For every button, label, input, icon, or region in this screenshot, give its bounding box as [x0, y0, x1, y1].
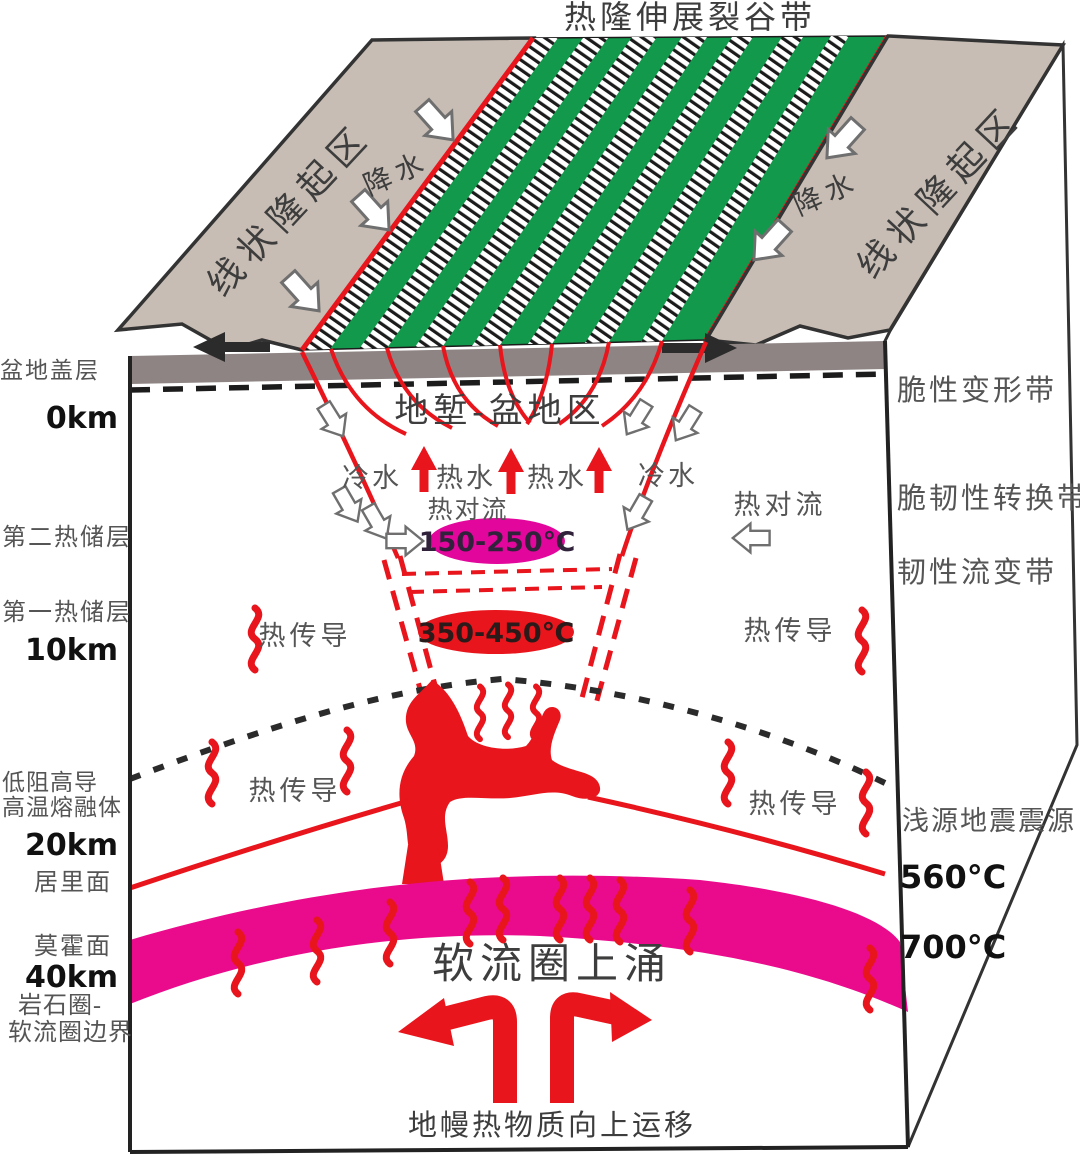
diagram-title: 热隆伸展裂谷带: [564, 0, 816, 35]
reservoir2-label: 第二热储层: [2, 524, 132, 551]
diagram-svg: 热隆伸展裂谷带 线状隆起区 线状隆起区 降水 降水 地堑-盆地区 冷水 热水 热…: [0, 0, 1080, 1157]
ellipse-temp-350-450: 350-450℃: [418, 618, 575, 649]
hot-water-label-2: 热水: [527, 463, 587, 493]
temp-560-label: 560°C: [900, 858, 1006, 896]
temp-700-label: 700°C: [900, 928, 1006, 966]
cold-water-arrow: [386, 527, 423, 556]
graben-title: 地堑-盆地区: [394, 392, 605, 430]
hot-water-arrow: [586, 447, 612, 493]
brittle-zone-label: 脆性变形带: [897, 374, 1057, 407]
depth-20km: 20km: [25, 828, 118, 863]
low-resistivity-label-1: 低阻高导: [2, 770, 98, 795]
heat-squiggle: [477, 687, 483, 740]
upwelling-arrows: [440, 1004, 616, 1103]
moho-surface-label: 莫霍面: [34, 933, 112, 960]
heat-squiggle: [862, 772, 870, 834]
low-resistivity-label-2: 高温熔融体: [2, 795, 122, 820]
mantle-transfer-label: 地幔热物质向上运移: [408, 1109, 696, 1142]
depth-0km: 0km: [46, 401, 118, 436]
conduction-upper-left-label: 热传导: [259, 621, 352, 651]
upwelling-arrowhead-left: [398, 998, 454, 1046]
magma-body: [399, 680, 600, 866]
lithosphere-boundary-label-1: 岩石圈-: [18, 992, 102, 1019]
conduction-lower-right-label: 热传导: [749, 789, 842, 819]
reservoir1-label: 第一热储层: [2, 599, 132, 626]
convection-right-label: 热对流: [734, 490, 827, 520]
convection-center-label: 热对流: [427, 496, 508, 524]
box-edge-bottom: [130, 1147, 908, 1152]
lithosphere-boundary-label-2: 软流圈边界: [8, 1019, 133, 1046]
transition-zone-label: 脆韧性转换带: [897, 482, 1080, 515]
heat-squiggle: [858, 610, 866, 672]
curie-surface-label: 居里面: [34, 870, 112, 896]
cold-water-arrow: [615, 395, 659, 441]
hot-water-label-1: 热水: [436, 463, 496, 493]
hot-water-arrow: [411, 446, 437, 492]
geothermal-rift-diagram: 热隆伸展裂谷带 线状隆起区 线状隆起区 降水 降水 地堑-盆地区 冷水 热水 热…: [0, 0, 1080, 1157]
magma-stem: [402, 845, 444, 884]
basin-cap-label: 盆地盖层: [0, 358, 100, 383]
heat-squiggle: [724, 742, 732, 804]
upwelling-label: 软流圈上涌: [432, 942, 672, 988]
hot-water-arrow: [498, 448, 524, 494]
depth-40km: 40km: [25, 960, 118, 995]
conduction-upper-right-label: 热传导: [744, 616, 837, 646]
dashed-isotherm-lines: [402, 569, 612, 592]
cold-water-right-label: 冷水: [638, 461, 698, 491]
heat-squiggle: [505, 685, 511, 738]
upwelling-arrow-right: [562, 1004, 616, 1103]
curie-line-left: [130, 801, 408, 888]
upwelling-arrowhead-right: [610, 992, 652, 1042]
cold-water-arrow: [733, 524, 770, 553]
ellipse-temp-150-250: 150-250℃: [419, 527, 576, 558]
seismic-source-label: 浅源地震震源: [902, 806, 1076, 836]
cold-water-arrow: [615, 491, 658, 537]
ductile-zone-label: 韧性流变带: [897, 556, 1057, 589]
conduction-lower-left-label: 热传导: [249, 776, 342, 806]
cold-water-arrow: [311, 397, 355, 443]
heat-squiggle: [343, 730, 351, 792]
upwelling-arrow-left: [440, 1007, 505, 1103]
cold-water-left-label: 冷水: [342, 463, 402, 493]
depth-10km: 10km: [25, 633, 118, 668]
